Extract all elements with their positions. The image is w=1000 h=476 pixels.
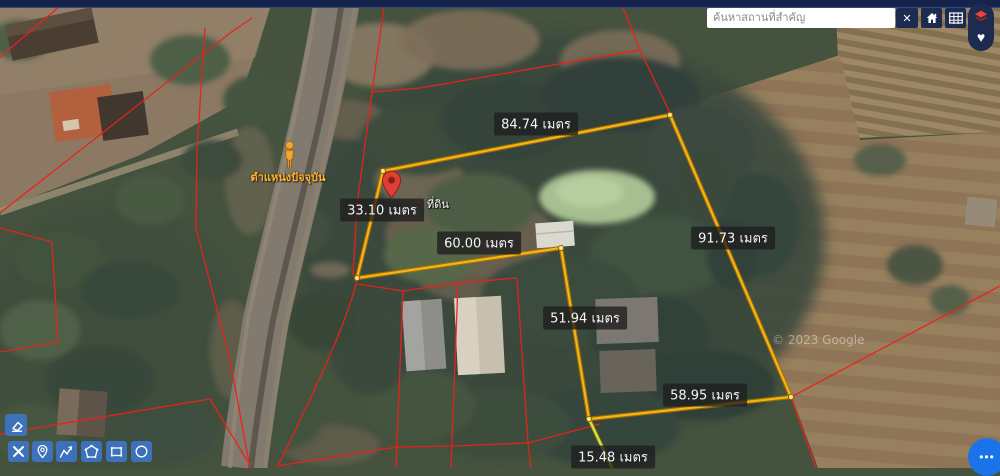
circle-tool-button[interactable] <box>131 441 152 462</box>
clear-drawings-button[interactable] <box>8 441 29 462</box>
favorites-button[interactable]: ♥ <box>977 30 985 44</box>
search-clear-button[interactable]: ✕ <box>896 8 918 28</box>
ellipsis-icon: ••• <box>979 450 995 464</box>
measurement-label: 60.00 เมตร <box>437 232 521 255</box>
rectangle-icon <box>109 444 124 459</box>
crossed-tools-icon <box>11 444 26 459</box>
grid-icon <box>949 12 963 24</box>
measurement-label: 84.74 เมตร <box>494 113 578 136</box>
eraser-icon <box>9 418 24 433</box>
map-side-controls: ♥ <box>968 3 994 51</box>
home-button[interactable] <box>921 8 942 28</box>
close-icon: ✕ <box>902 12 911 25</box>
polyline-measure-icon <box>59 444 74 459</box>
eraser-tool-button[interactable] <box>5 414 27 436</box>
measure-path-tool-button[interactable] <box>56 441 77 462</box>
marker-name-label: ที่ดิน <box>427 195 449 213</box>
measurement-label: 91.73 เมตร <box>691 227 775 250</box>
circle-icon <box>134 444 149 459</box>
polygon-icon <box>84 444 99 459</box>
current-location-pegman-icon[interactable] <box>281 141 298 169</box>
measurement-label: 51.94 เมตร <box>543 307 627 330</box>
home-icon <box>926 12 938 24</box>
top-bar <box>0 0 1000 8</box>
measurement-label: 58.95 เมตร <box>663 384 747 407</box>
map-pin-icon <box>35 444 50 459</box>
measurement-label: 33.10 เมตร <box>340 199 424 222</box>
heart-icon: ♥ <box>977 30 985 44</box>
map-watermark: © 2023 Google <box>772 333 864 347</box>
place-marker-pin[interactable] <box>381 170 402 199</box>
polygon-tool-button[interactable] <box>81 441 102 462</box>
grid-view-button[interactable] <box>945 8 966 28</box>
layers-button[interactable] <box>974 10 988 22</box>
search-input[interactable] <box>707 8 895 28</box>
layers-icon <box>974 10 988 22</box>
rectangle-tool-button[interactable] <box>106 441 127 462</box>
pond <box>539 170 655 224</box>
measurement-label: 15.48 เมตร <box>571 446 655 469</box>
marker-tool-button[interactable] <box>32 441 53 462</box>
current-location-label: ตำแหน่งปัจจุบัน <box>251 168 326 186</box>
more-actions-fab[interactable]: ••• <box>968 438 1000 476</box>
